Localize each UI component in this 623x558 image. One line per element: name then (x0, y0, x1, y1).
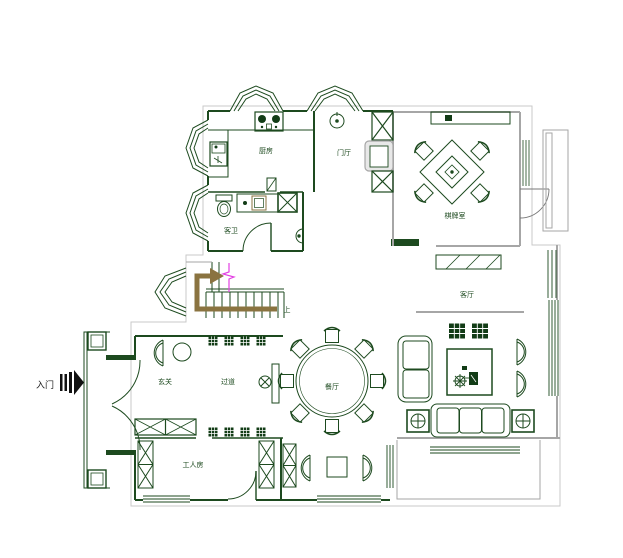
washbasin-icon (296, 229, 303, 243)
sink-icon (210, 142, 227, 166)
chair-icon (279, 373, 294, 389)
game-table (420, 140, 484, 204)
sideboard (436, 255, 501, 269)
bathroom: 客卫 (216, 193, 303, 251)
game-room: 棋牌室 (412, 112, 568, 231)
cabinet-box (241, 337, 250, 346)
foyer-chair (154, 340, 163, 366)
stairs-up-label: 上 (284, 305, 291, 314)
foyer-label: 玄关 (158, 377, 172, 386)
loveseat (398, 336, 432, 402)
window (143, 496, 190, 502)
coffee-table (447, 349, 492, 395)
tv-unit (449, 324, 465, 339)
window (523, 140, 529, 186)
chair-icon (371, 373, 386, 389)
cabinet-box (209, 428, 218, 437)
fridge-icon (365, 141, 393, 171)
dining-table (296, 345, 368, 417)
barrel-chair (363, 455, 372, 481)
closet (283, 444, 296, 487)
side-table (512, 410, 534, 432)
entry-label: 入门 (36, 379, 54, 391)
kitchen-label: 厨房 (259, 146, 273, 155)
floor-plan-canvas: 厨房 门厅 (0, 0, 623, 558)
chair-icon (412, 183, 434, 205)
floor-plan-drawing: 厨房 门厅 (0, 0, 623, 558)
chair-icon (324, 420, 340, 435)
shower-icon (278, 193, 297, 212)
wardrobe (259, 441, 274, 488)
dining-room-label: 餐厅 (325, 382, 339, 391)
chair-icon (324, 328, 340, 343)
window (317, 445, 393, 502)
living-room: 客厅 (398, 250, 558, 453)
corridor-label: 过道 (221, 377, 235, 386)
stairs: 上 (186, 262, 291, 318)
hall-label: 门厅 (337, 148, 351, 157)
clock-icon (330, 112, 344, 128)
chair-icon (288, 337, 310, 359)
sofa-three-seat (431, 404, 510, 437)
terrace-seating (283, 444, 393, 502)
bay-window-stairs (155, 268, 186, 316)
servant-room: 工人房 (138, 441, 274, 502)
cabinet-box (241, 428, 250, 437)
shaft-column (365, 112, 393, 192)
bay-window-top-left (230, 86, 283, 111)
foyer: 玄关 过道 (135, 337, 279, 437)
entry-hall: 门厅 (330, 112, 351, 157)
window (430, 250, 558, 453)
plant-icon (259, 376, 271, 388)
ceiling-fan-icon (453, 374, 470, 388)
bay-window-top-right (307, 86, 363, 111)
game-room-label: 棋牌室 (445, 211, 466, 220)
servant-room-door (228, 471, 256, 500)
servant-room-label: 工人房 (183, 460, 204, 469)
door-jamb (267, 178, 276, 191)
barrel-chair (301, 455, 310, 481)
stove-icon (255, 112, 283, 131)
entry-porch: 入门 (36, 332, 140, 488)
chair-icon (288, 403, 310, 425)
chair-icon (470, 139, 492, 161)
console-cabinet (431, 112, 510, 124)
cabinet-box (257, 428, 266, 437)
porch-pillar (88, 332, 106, 488)
toilet-icon (216, 195, 232, 217)
entry-double-door (106, 355, 140, 455)
square-table (327, 457, 347, 477)
screen-partition (259, 364, 279, 403)
chair-icon (354, 337, 376, 359)
chair-icon (354, 403, 376, 425)
cabinet-box (225, 337, 234, 346)
chair-icon (412, 139, 434, 161)
cabinet-box (225, 428, 234, 437)
cabinet-box (257, 337, 266, 346)
bay-window-left-lower (186, 185, 208, 241)
walls-gray (393, 112, 560, 438)
vanity-sink-icon (237, 194, 278, 212)
bathroom-door (243, 223, 271, 251)
shoe-cabinet (135, 419, 196, 435)
tv-unit (472, 324, 488, 339)
armchair (517, 339, 526, 365)
entry-arrow-icon (60, 370, 84, 395)
round-table (173, 343, 191, 361)
chair-icon (470, 183, 492, 205)
dining-room: 餐厅 (279, 328, 386, 435)
side-annex (543, 130, 568, 231)
bathroom-label: 客卫 (224, 226, 238, 235)
bay-window-left-upper (186, 120, 208, 176)
side-table (407, 410, 429, 432)
stair-treads (206, 292, 284, 318)
kitchen: 厨房 (208, 112, 314, 191)
armchair (517, 371, 526, 397)
terrace-outline (397, 440, 540, 499)
annex-door (520, 189, 549, 218)
cabinet-box (209, 337, 218, 346)
living-room-label: 客厅 (460, 290, 474, 299)
break-line-icon (223, 263, 234, 292)
